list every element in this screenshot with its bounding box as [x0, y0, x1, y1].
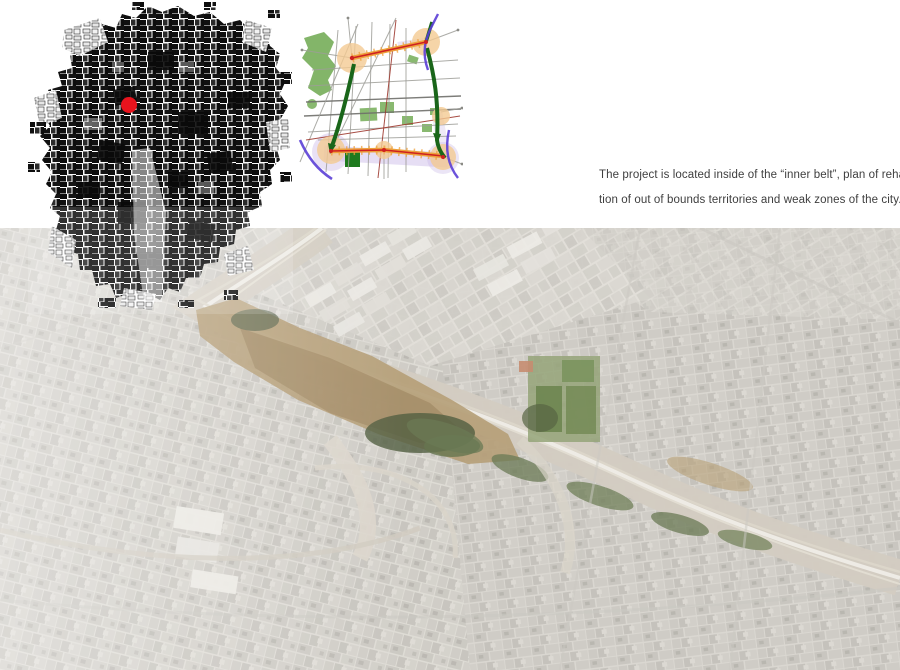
figure-ground-mass — [28, 2, 293, 314]
presentation-page: The project is located inside of the “in… — [0, 0, 900, 670]
caption-line-1: The project is located inside of the “in… — [599, 163, 899, 188]
caption-line-2: tion of out of bounds territories and we… — [599, 188, 899, 213]
city-figure-ground-map — [28, 2, 293, 314]
inner-belt-plan-diagram — [298, 12, 463, 180]
caption: The project is located inside of the “in… — [599, 163, 899, 213]
site-location-marker — [121, 97, 137, 113]
